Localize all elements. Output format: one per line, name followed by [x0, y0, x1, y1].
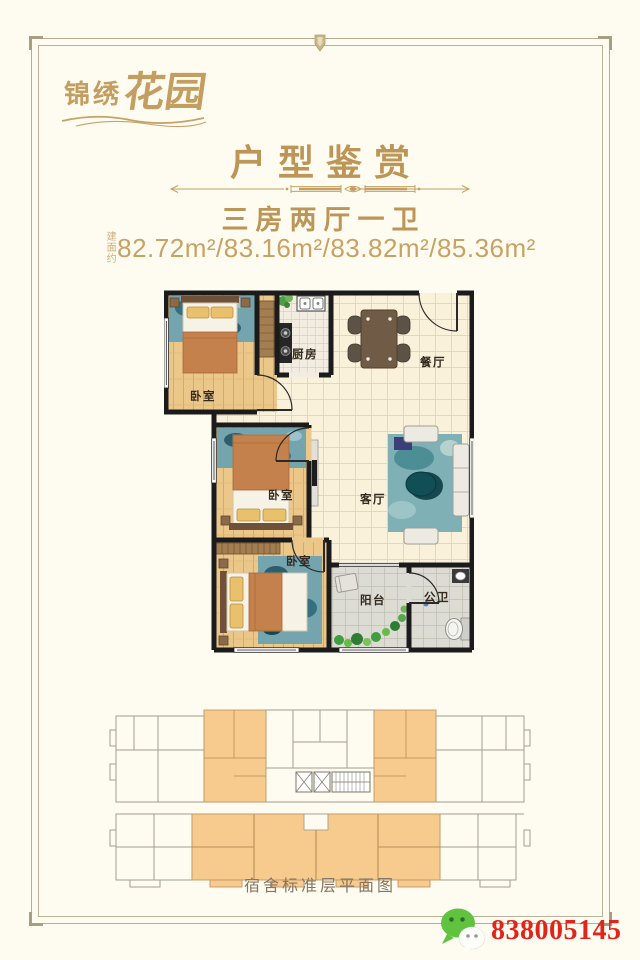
- logo-name-part2: 花园: [121, 72, 209, 113]
- wechat-icon: [438, 906, 490, 956]
- bedroom-c-closet: [216, 543, 280, 554]
- wechat-watermark: 838005145: [438, 906, 622, 956]
- balcony-chair: [335, 573, 358, 592]
- living-sofa-set: [388, 426, 469, 544]
- ornamental-divider: [169, 182, 471, 196]
- wave-flourish-icon: [58, 112, 208, 130]
- standard-floor-plate: [100, 702, 540, 892]
- room-label-kitchen: 厨房: [292, 347, 318, 361]
- bathroom-sink: [452, 569, 469, 583]
- bedroom-c-door-opening: [292, 538, 324, 543]
- frame-corner-ornament: [29, 36, 43, 50]
- building-caption: 宿舍标准层平面图: [0, 872, 640, 896]
- wechat-id-text: 838005145: [491, 915, 622, 947]
- page-title: 户型鉴赏: [0, 134, 640, 186]
- bedroom-b-door-opening: [307, 428, 312, 461]
- entry-lobby: [304, 814, 328, 830]
- kitchen-door-opening: [289, 373, 319, 378]
- wardrobe: [259, 301, 274, 357]
- room-label-balcony: 阳台: [360, 593, 386, 607]
- room-label-bedroom-b: 卧室: [268, 488, 294, 502]
- logo-name-part1: 锦绣: [64, 81, 122, 113]
- kitchen-sink: [297, 296, 325, 311]
- area-values: 82.72m²/83.16m²/83.82m²/85.36m²: [117, 233, 536, 264]
- bathroom-door-opening: [407, 573, 412, 603]
- core-stairs: [332, 772, 370, 792]
- room-label-bedroom-c: 卧室: [286, 554, 312, 568]
- area-info: 建面约 82.72m²/83.16m²/83.82m²/85.36m²: [0, 231, 640, 265]
- core-elevators: [296, 772, 330, 792]
- room-label-bathroom: 公卫: [424, 591, 450, 604]
- area-prefix-label: 建面约: [104, 231, 114, 265]
- room-label-dining: 餐厅: [419, 355, 446, 369]
- project-logo: 锦绣 花园: [64, 72, 214, 128]
- tv-cabinet: [311, 440, 318, 506]
- frame-corner-ornament: [29, 912, 43, 926]
- toilet: [446, 618, 471, 640]
- frame-crest-icon: [312, 33, 328, 53]
- room-label-living: 客厅: [359, 492, 386, 506]
- kitchen-stove: [279, 323, 292, 363]
- room-label-bedroom-a: 卧室: [190, 389, 216, 403]
- apartment-floorplan: 卧室 厨房 餐厅 卧室 客厅 卧室 阳台 公卫: [164, 288, 474, 660]
- frame-corner-ornament: [598, 36, 612, 50]
